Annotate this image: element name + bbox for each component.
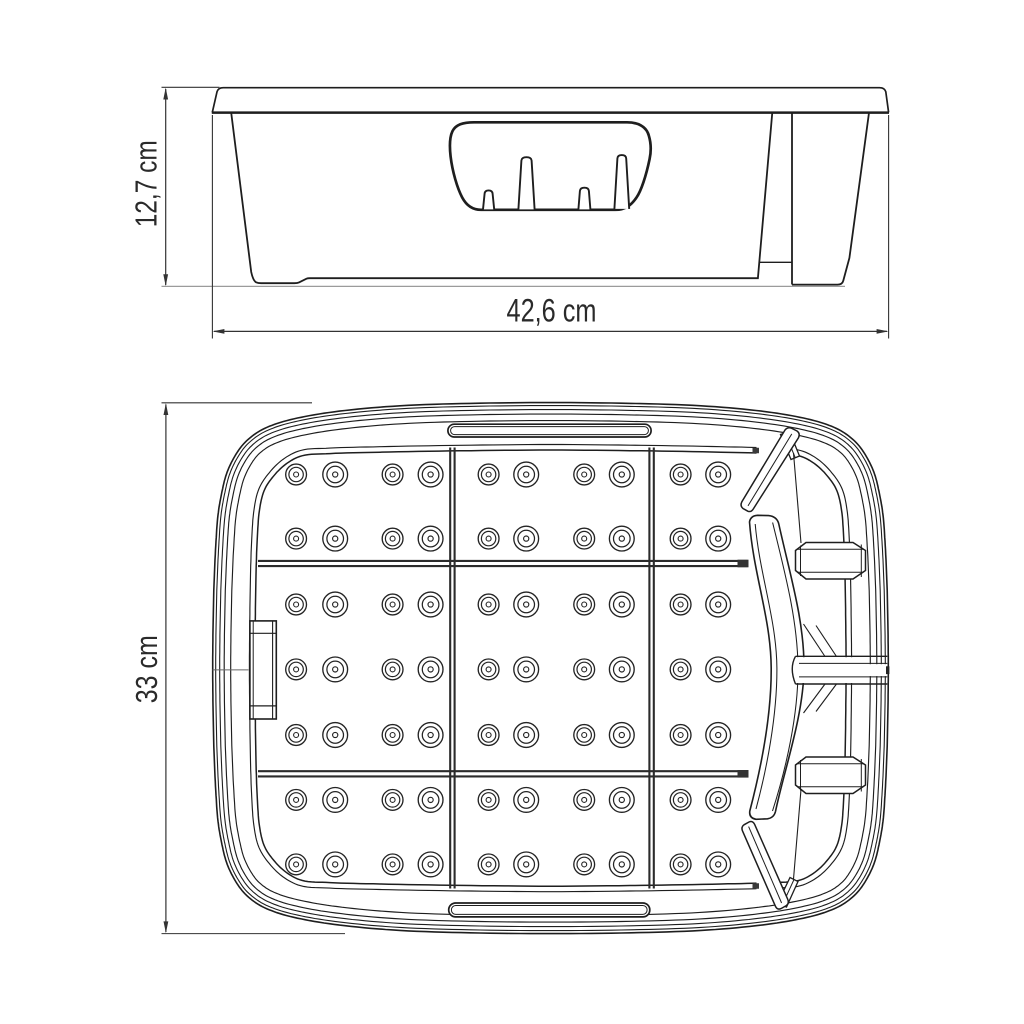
svg-text:12,7 cm: 12,7 cm <box>129 140 163 227</box>
svg-text:33 cm: 33 cm <box>130 635 164 703</box>
svg-text:42,6 cm: 42,6 cm <box>507 293 597 329</box>
